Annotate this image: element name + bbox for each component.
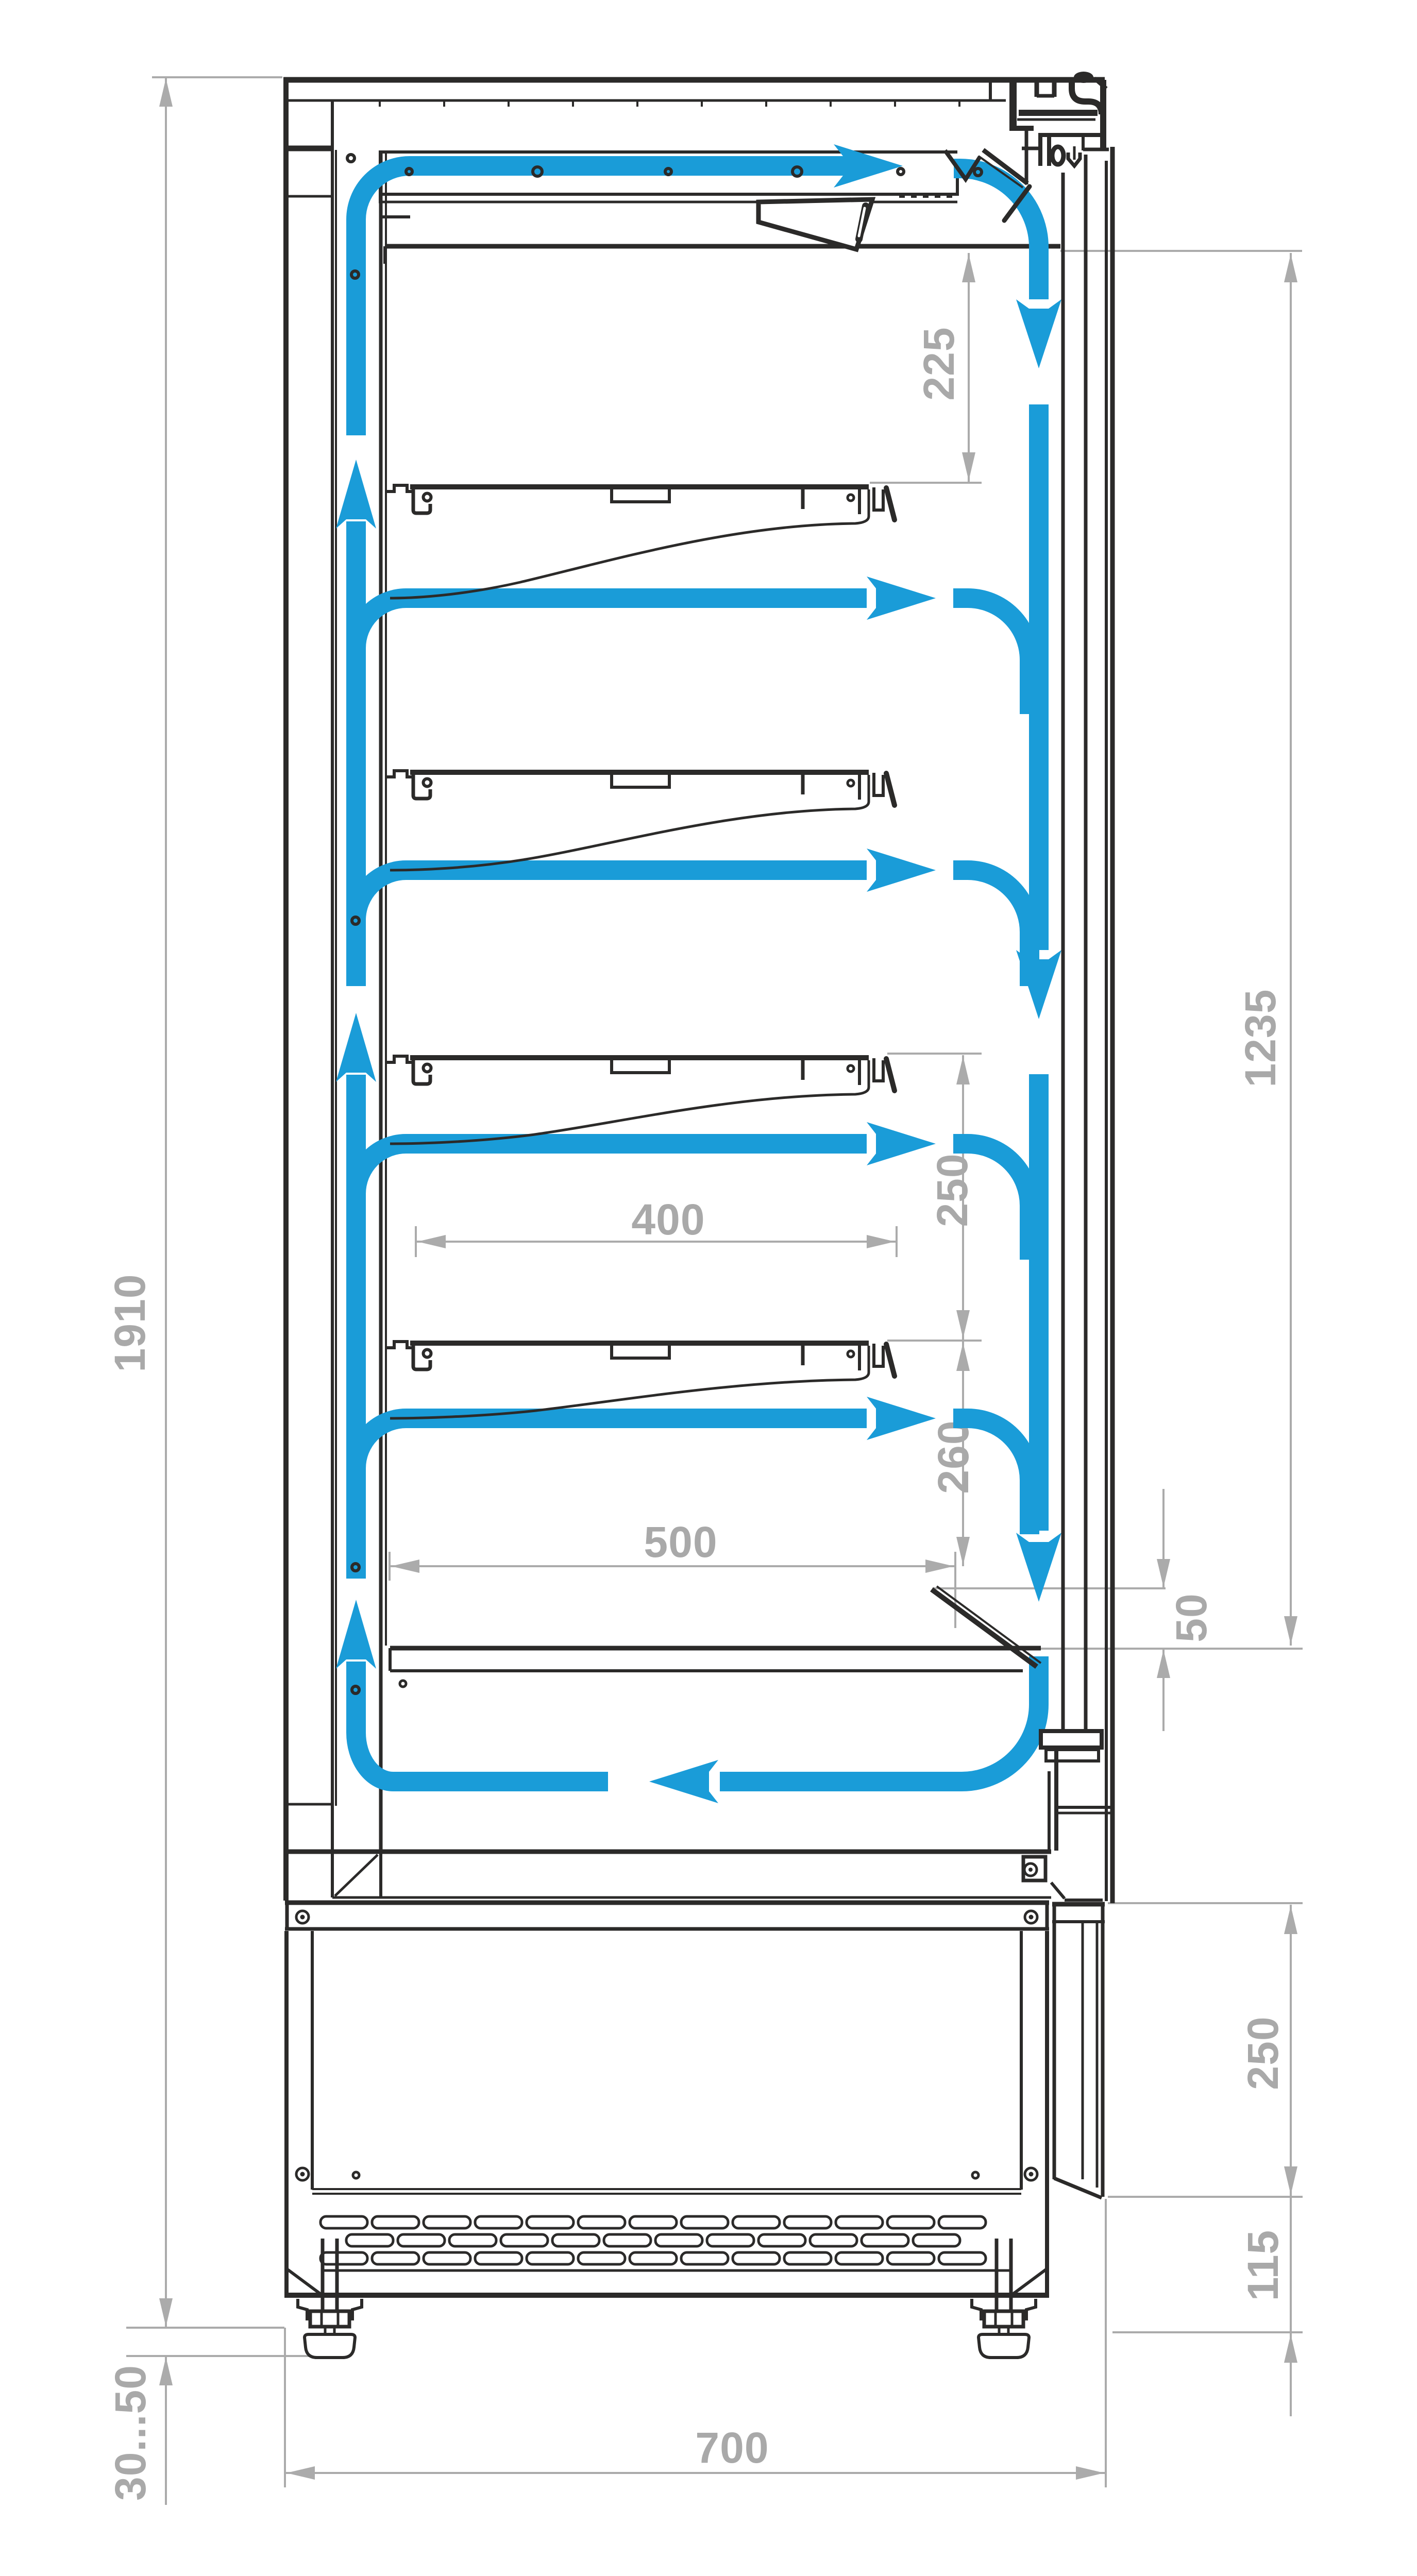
svg-text:115: 115 <box>1239 2230 1287 2301</box>
svg-text:1235: 1235 <box>1236 989 1285 1088</box>
svg-text:260: 260 <box>929 1420 977 1494</box>
svg-text:700: 700 <box>695 2424 769 2472</box>
svg-text:250: 250 <box>928 1153 976 1227</box>
svg-text:30...50: 30...50 <box>106 2365 155 2501</box>
svg-text:50: 50 <box>1167 1593 1216 1642</box>
svg-text:400: 400 <box>631 1195 705 1244</box>
svg-text:1910: 1910 <box>106 1274 154 1372</box>
svg-text:500: 500 <box>644 1518 717 1566</box>
svg-text:250: 250 <box>1239 2016 1287 2090</box>
svg-text:225: 225 <box>915 327 963 400</box>
